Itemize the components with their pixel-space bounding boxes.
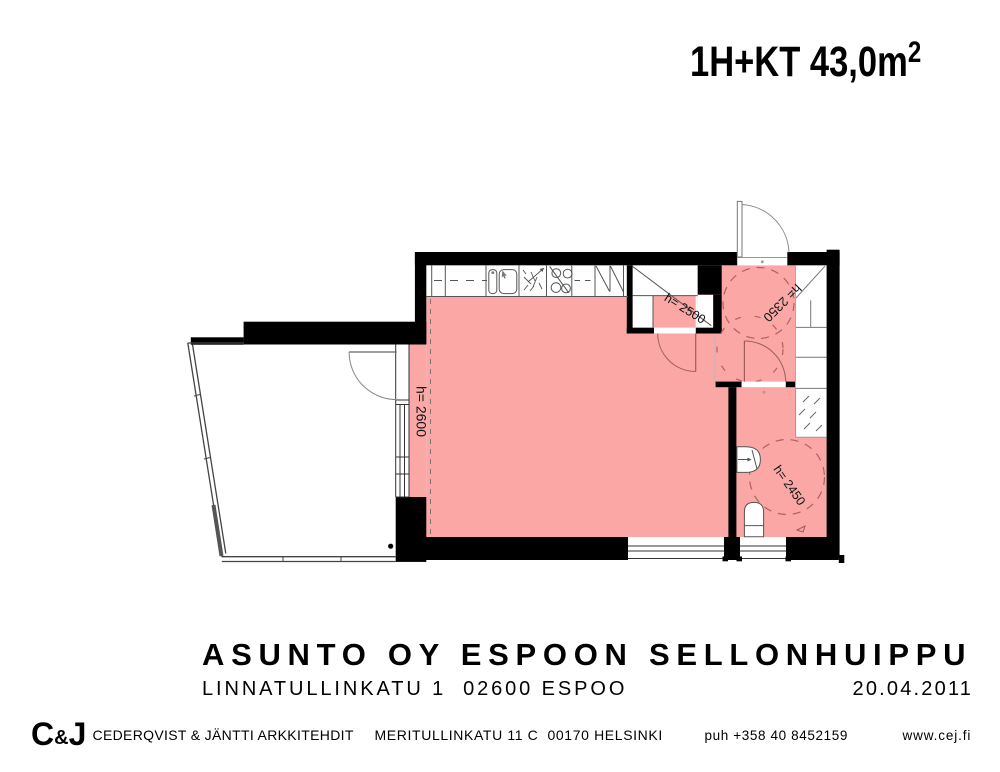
svg-text:MERITULLINKATU 11 C 00170 HEL: MERITULLINKATU 11 C 00170 HELSINKI xyxy=(375,727,663,743)
svg-text:puh +358 40 8452159: puh +358 40 8452159 xyxy=(705,728,849,743)
svg-text:1H+KT 43,0m: 1H+KT 43,0m xyxy=(690,39,908,86)
svg-text:www.cej.fi: www.cej.fi xyxy=(902,728,972,743)
svg-text:CEDERQVIST & JÄNTTI ARKKITEHDI: CEDERQVIST & JÄNTTI ARKKITEHDIT xyxy=(93,727,354,743)
svg-text:LINNATULLINKATU 1 02600 ESPOO: LINNATULLINKATU 1 02600 ESPOO xyxy=(202,678,627,700)
svg-text:20.04.2011: 20.04.2011 xyxy=(853,678,974,700)
svg-text:ASUNTO OY ESPOON SELLONHUIPPU: ASUNTO OY ESPOON SELLONHUIPPU xyxy=(202,637,972,672)
svg-text:2: 2 xyxy=(908,34,921,68)
svg-text:h= 2600: h= 2600 xyxy=(414,386,430,437)
